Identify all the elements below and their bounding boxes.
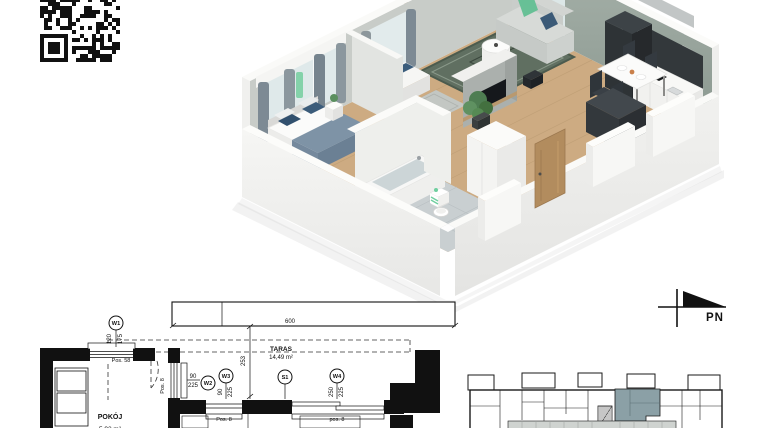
svg-text:250: 250 bbox=[329, 386, 335, 397]
balconies bbox=[468, 373, 720, 390]
marker-s1: S1 bbox=[278, 370, 292, 399]
svg-text:W4: W4 bbox=[333, 374, 342, 380]
ground-terraces bbox=[508, 421, 676, 428]
north-label: PN bbox=[706, 312, 724, 324]
pos-8-w4: pos. 8 bbox=[330, 417, 345, 423]
svg-text:90: 90 bbox=[218, 388, 224, 395]
svg-text:225: 225 bbox=[188, 383, 199, 389]
svg-text:W3: W3 bbox=[222, 374, 230, 380]
north-arrow-icon: PN bbox=[650, 280, 760, 335]
svg-text:S1: S1 bbox=[282, 375, 289, 381]
floor-plan-sheet: PN 600 253 TARAS 14,49 m² bbox=[0, 0, 760, 428]
svg-text:120: 120 bbox=[107, 333, 113, 344]
highlighted-unit bbox=[615, 389, 660, 421]
terrace-area: 14,49 m² bbox=[269, 355, 293, 361]
marker-w2: W2 90 225 bbox=[187, 374, 215, 390]
pos-8-door: Pos. 8 bbox=[160, 378, 166, 394]
svg-text:W1: W1 bbox=[112, 321, 120, 327]
marker-w1: W1 120 175 bbox=[107, 316, 124, 347]
svg-text:90: 90 bbox=[190, 374, 197, 380]
marker-w4: W4 250 225 bbox=[329, 369, 345, 399]
dim-600: 600 bbox=[285, 319, 296, 325]
marker-w3: W3 90 225 bbox=[218, 369, 234, 399]
slab-outline bbox=[170, 302, 458, 328]
svg-text:225: 225 bbox=[228, 386, 234, 397]
terrace-label: TARAS bbox=[270, 346, 293, 353]
window-w2 bbox=[168, 363, 187, 398]
svg-text:175: 175 bbox=[118, 333, 124, 344]
building-key-plan bbox=[460, 370, 760, 428]
door-swing bbox=[151, 361, 158, 388]
floor-plan-2d: 600 253 TARAS 14,49 m² bbox=[0, 295, 480, 428]
room-label: POKÓJ bbox=[98, 412, 123, 421]
svg-text:W2: W2 bbox=[204, 381, 212, 387]
bed-symbol bbox=[55, 368, 88, 426]
pos-8-w3: Pos. 8 bbox=[216, 417, 232, 423]
pos-58: Pos. 58 bbox=[112, 358, 131, 364]
svg-text:225: 225 bbox=[339, 386, 345, 397]
dim-253: 253 bbox=[241, 355, 247, 366]
terrace-outline bbox=[108, 324, 410, 400]
